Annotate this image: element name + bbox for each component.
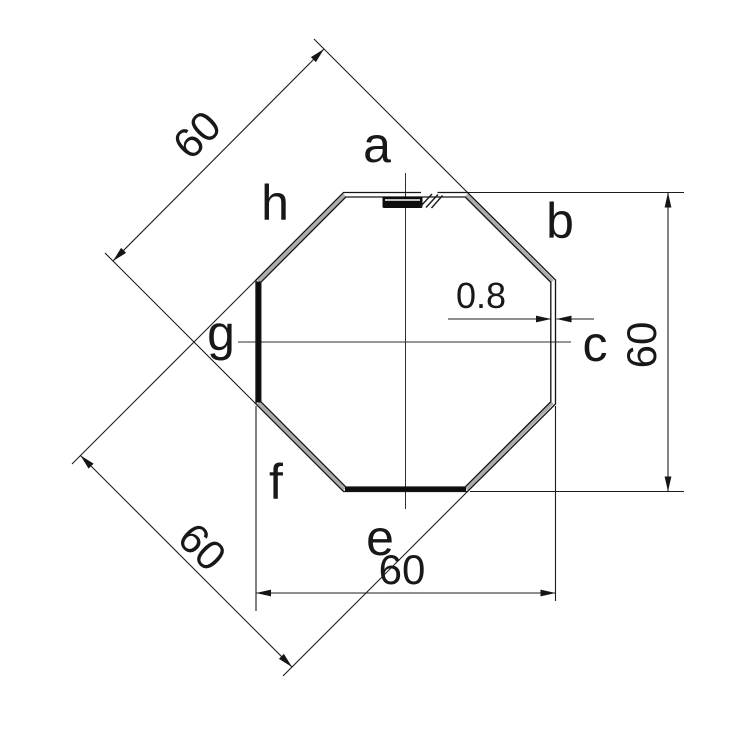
side-label-b: b [546,193,574,249]
dim-text-wall-thickness: 0.8 [456,275,506,316]
seam-block [383,197,423,209]
side-label-g: g [207,305,235,361]
seam-line-gap [421,191,438,196]
octagon-cross-section-drawing: a b c e f g h 60 60 60 60 0.8 [0,0,756,739]
dim-text-height-right: 60 [618,322,665,369]
dim-text-width-bottom: 60 [379,546,426,593]
drawing-background [0,0,756,739]
side-label-c: c [583,316,608,372]
side-label-f: f [269,454,283,510]
side-label-a: a [363,117,391,173]
side-label-h: h [261,175,289,231]
technical-drawing-page: a b c e f g h 60 60 60 60 0.8 [0,0,756,739]
